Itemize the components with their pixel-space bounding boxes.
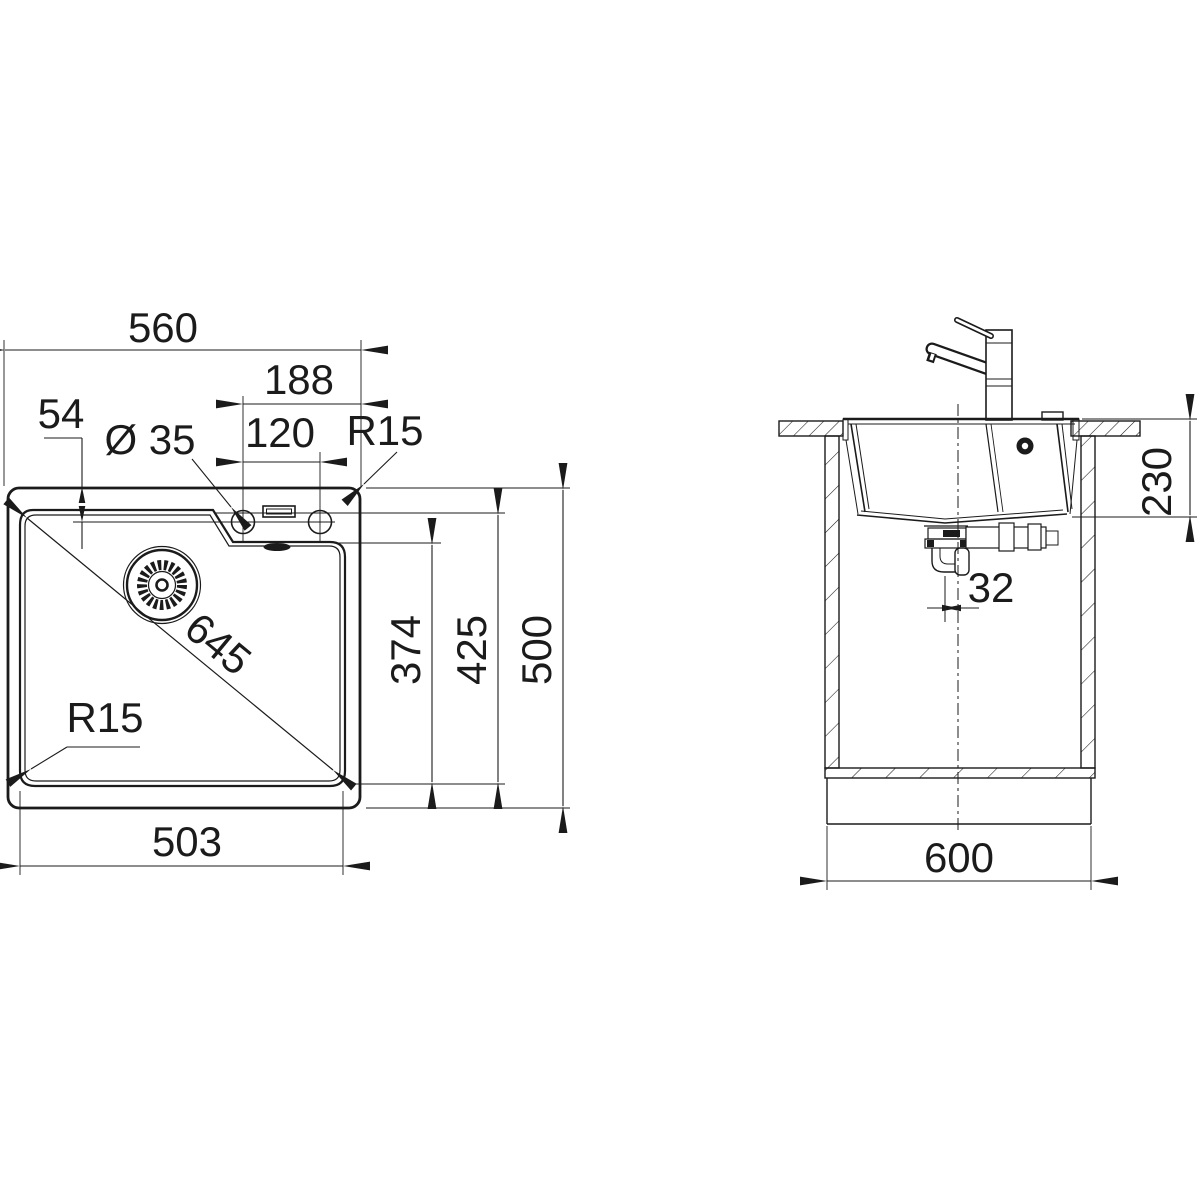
dim-edge-to-tap: 54 [38,390,85,549]
cabinet-bottom [825,768,1095,778]
sink-section [843,412,1079,523]
ledge-recess [264,543,291,551]
overflow-slot [263,506,295,517]
dim-cabinet-width: 600 [827,834,1091,881]
dim-edge-to-tap-label: 54 [38,390,85,437]
dim-ledge-to-front: 374 [382,545,432,782]
dim-drain-offset-label: 32 [968,564,1015,611]
dim-rim-corner-radius: R15 [346,407,423,484]
faucet [930,320,1012,420]
dim-overall-depth-label: 500 [513,615,560,685]
dim-bowl-corner-radius-label: R15 [66,694,143,741]
dim-tap-diameter: Ø 35 [104,416,231,507]
dim-tap-spacing: 120 [243,409,320,462]
countertop-left [779,421,843,436]
cabinet-wall-right [1081,436,1095,768]
dim-cabinet-width-label: 600 [924,834,994,881]
dim-tap-zone-width: 188 [243,356,361,404]
dim-bowl-depth: 230 [1133,421,1190,517]
trap-bend [932,548,957,572]
dim-rim-corner-radius-label: R15 [346,407,423,454]
dim-tap-spacing-label: 120 [245,409,315,456]
dim-bowl-width-label: 503 [152,818,222,865]
cabinet [825,436,1095,824]
bowl-outline [20,510,345,786]
dim-ledge-to-front-label: 374 [382,615,429,685]
side-view: 230 32 600 [779,320,1197,890]
dim-bowl-corner-radius: R15 [31,694,144,769]
dim-bowl-length: 425 [448,515,498,782]
technical-drawing: 645 560 188 120 [0,0,1200,1200]
dim-overall-width-label: 560 [128,304,198,351]
countertop-right [1071,421,1140,436]
dim-bowl-length-label: 425 [448,615,495,685]
dim-overall-depth: 500 [513,490,563,806]
cabinet-wall-left [825,436,839,768]
drain-strainer [124,547,201,624]
top-view: 645 560 188 120 [4,304,570,875]
bowl-wall-right [1057,424,1068,512]
sink-spec-sheet: 645 560 188 120 [0,0,1200,1200]
dim-tap-diameter-label: Ø 35 [104,416,195,463]
dim-bowl-diagonal-label: 645 [176,603,260,684]
dim-tap-zone-width-label: 188 [264,356,334,403]
bowl-bottom [857,514,1067,523]
cabinet-plinth [827,778,1091,824]
dim-bowl-width: 503 [20,818,343,866]
dim-bowl-depth-label: 230 [1133,447,1180,517]
dim-overall-width: 560 [5,304,361,351]
